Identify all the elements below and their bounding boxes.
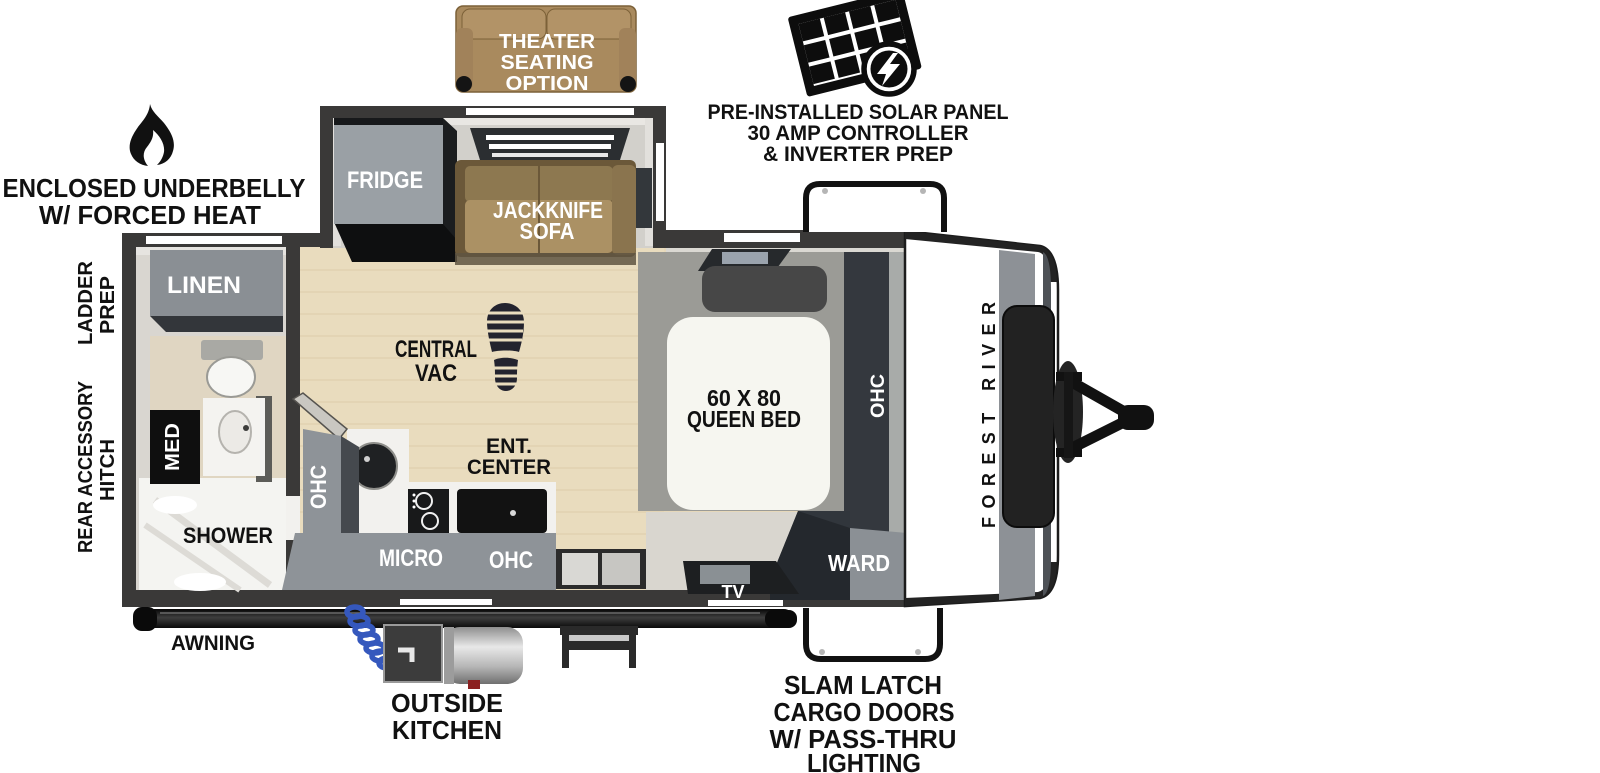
svg-text:SOFA: SOFA — [520, 218, 575, 244]
svg-text:OUTSIDE: OUTSIDE — [391, 688, 503, 718]
svg-text:MICRO: MICRO — [379, 545, 443, 572]
svg-text:TV: TV — [722, 582, 745, 602]
svg-text:& INVERTER PREP: & INVERTER PREP — [763, 143, 953, 166]
svg-text:OHC: OHC — [489, 547, 533, 574]
svg-text:VAC: VAC — [415, 360, 457, 387]
svg-text:LADDER: LADDER — [75, 260, 97, 345]
svg-text:KITCHEN: KITCHEN — [392, 715, 502, 745]
svg-text:W/ FORCED HEAT: W/ FORCED HEAT — [39, 200, 261, 230]
svg-text:WARD: WARD — [828, 550, 890, 576]
svg-text:PREP: PREP — [97, 276, 119, 334]
svg-text:FOREST RIVER: FOREST RIVER — [979, 296, 999, 528]
svg-text:MED: MED — [162, 423, 184, 471]
svg-text:HITCH: HITCH — [97, 439, 119, 501]
svg-text:OPTION: OPTION — [506, 73, 589, 95]
svg-text:REAR ACCESSORY: REAR ACCESSORY — [75, 380, 97, 553]
svg-text:AWNING: AWNING — [171, 632, 255, 655]
svg-text:QUEEN BED: QUEEN BED — [687, 406, 801, 432]
svg-text:LINEN: LINEN — [167, 272, 241, 299]
svg-text:PRE-INSTALLED SOLAR PANEL: PRE-INSTALLED SOLAR PANEL — [708, 101, 1009, 124]
svg-text:SEATING: SEATING — [501, 52, 594, 74]
svg-text:ENCLOSED UNDERBELLY: ENCLOSED UNDERBELLY — [3, 173, 306, 203]
svg-text:THEATER: THEATER — [499, 31, 596, 53]
svg-text:OHC: OHC — [306, 465, 331, 509]
svg-text:OHC: OHC — [868, 374, 889, 418]
svg-text:SLAM LATCH: SLAM LATCH — [784, 670, 942, 700]
svg-text:SHOWER: SHOWER — [183, 523, 273, 548]
svg-text:ENT.: ENT. — [486, 435, 532, 458]
svg-text:30 AMP CONTROLLER: 30 AMP CONTROLLER — [748, 122, 969, 145]
svg-text:LIGHTING: LIGHTING — [807, 748, 921, 773]
svg-text:CENTER: CENTER — [467, 456, 551, 479]
svg-text:CENTRAL: CENTRAL — [395, 336, 477, 363]
svg-text:CARGO DOORS: CARGO DOORS — [774, 697, 955, 727]
svg-text:FRIDGE: FRIDGE — [347, 167, 423, 194]
